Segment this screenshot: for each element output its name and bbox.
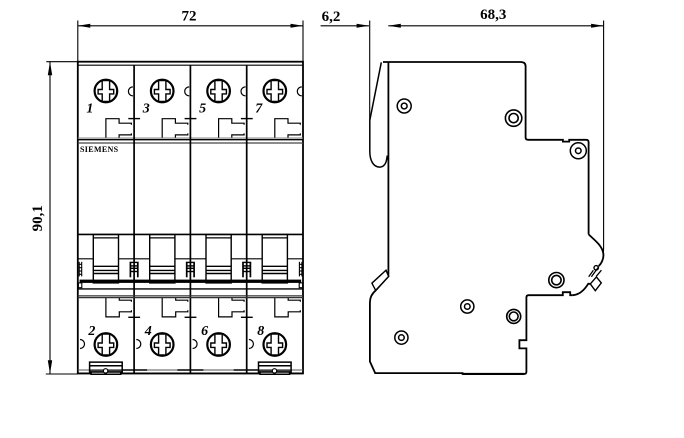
svg-text:SIEMENS: SIEMENS — [80, 145, 119, 154]
svg-text:90,1: 90,1 — [30, 205, 46, 231]
svg-text:6,2: 6,2 — [322, 9, 341, 25]
svg-text:6: 6 — [201, 324, 208, 339]
svg-text:2: 2 — [87, 324, 95, 339]
svg-text:72: 72 — [182, 8, 197, 24]
svg-text:68,3: 68,3 — [480, 7, 506, 23]
svg-text:4: 4 — [144, 324, 152, 339]
svg-text:8: 8 — [257, 324, 264, 339]
svg-text:7: 7 — [255, 102, 263, 117]
svg-text:3: 3 — [142, 102, 150, 117]
svg-text:5: 5 — [199, 102, 206, 117]
svg-text:1: 1 — [86, 102, 93, 117]
